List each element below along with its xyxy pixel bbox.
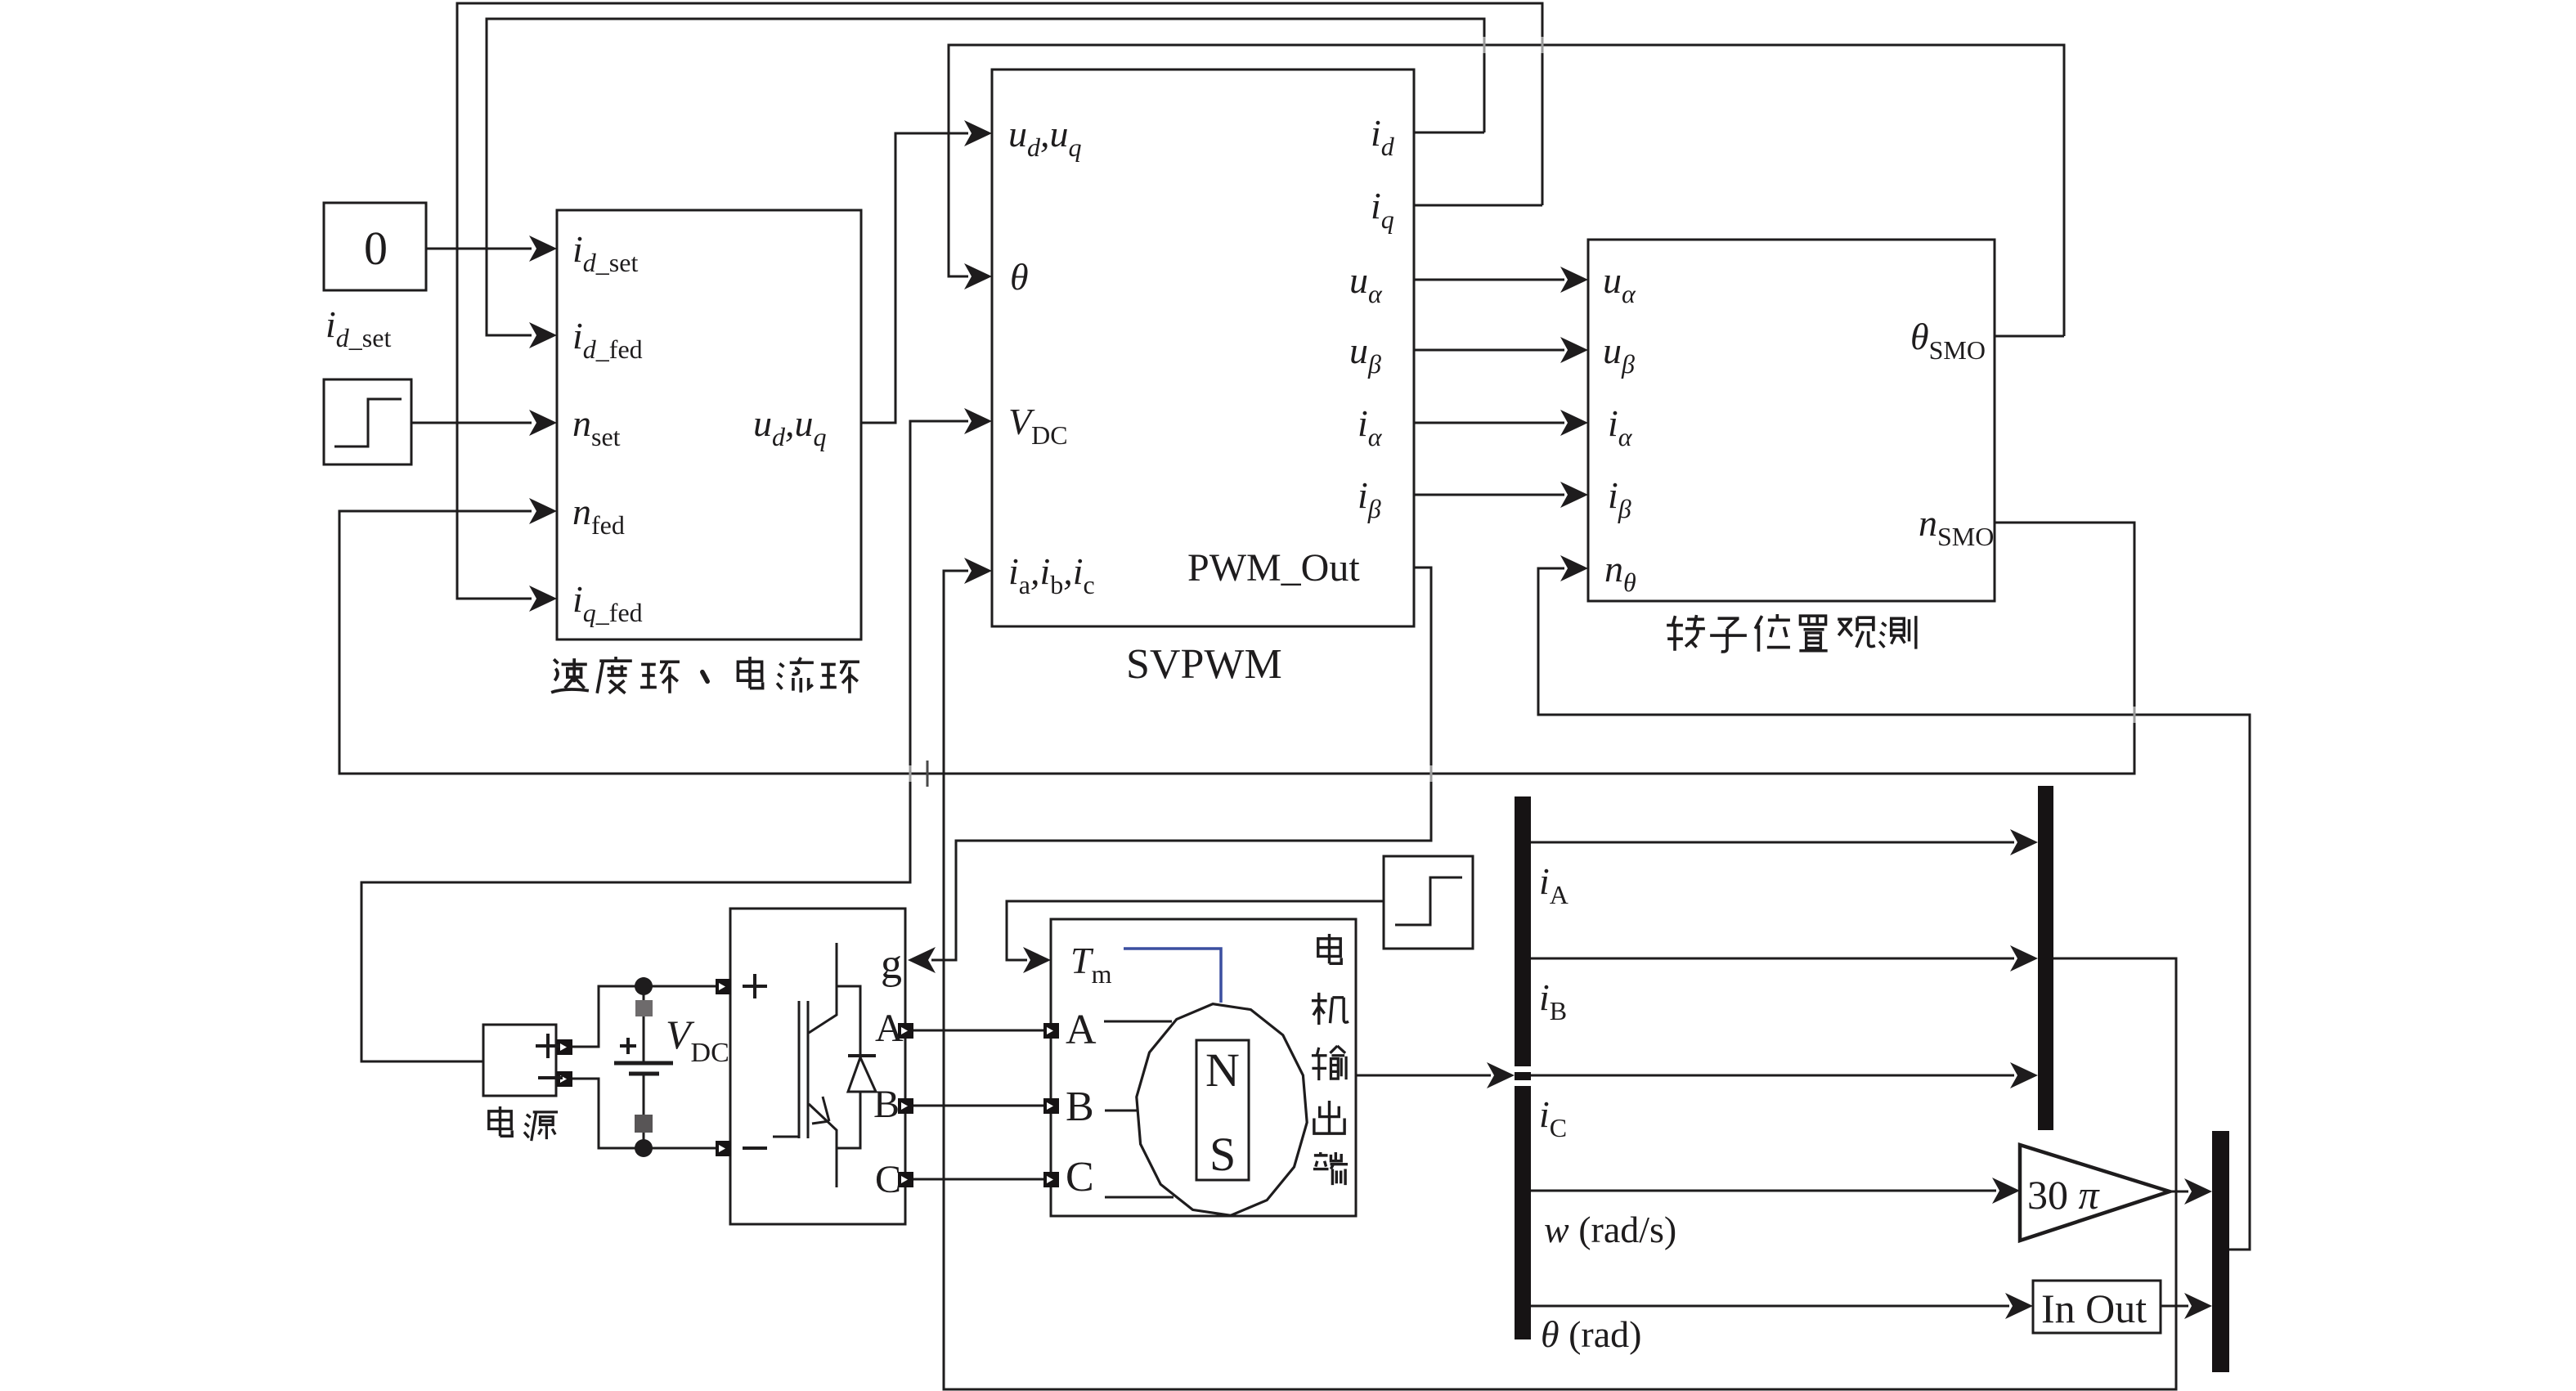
svg-text:PWM_Out: PWM_Out xyxy=(1187,546,1360,590)
svg-text:θ (rad): θ (rad) xyxy=(1541,1313,1641,1355)
svg-text:C: C xyxy=(1066,1154,1094,1200)
svg-text:A: A xyxy=(1066,1007,1097,1053)
svg-text:N: N xyxy=(1205,1043,1240,1097)
svg-text:θ: θ xyxy=(1010,256,1029,298)
svg-text:C: C xyxy=(875,1158,901,1201)
svg-text:0: 0 xyxy=(364,222,388,275)
svg-text:SVPWM: SVPWM xyxy=(1126,641,1282,688)
svg-text:g: g xyxy=(881,941,902,988)
svg-text:30 π: 30 π xyxy=(2027,1172,2101,1218)
svg-text:A: A xyxy=(875,1007,904,1050)
svg-text:In Out: In Out xyxy=(2041,1286,2147,1331)
svg-text:B: B xyxy=(1066,1084,1094,1130)
svg-text:S: S xyxy=(1209,1128,1236,1181)
svg-text:w (rad/s): w (rad/s) xyxy=(1544,1209,1676,1250)
svg-text:B: B xyxy=(873,1083,900,1126)
